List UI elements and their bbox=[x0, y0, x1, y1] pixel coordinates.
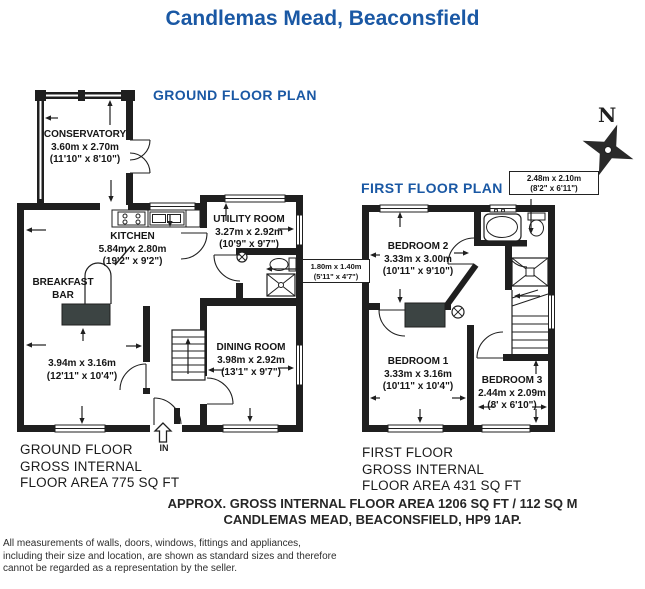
page-title: Candlemas Mead, Beaconsfield bbox=[0, 7, 645, 31]
dining-room-label: DINING ROOM 3.98m x 2.92m (13'1" x 9'7") bbox=[203, 342, 299, 380]
extractor-fan-icon bbox=[237, 252, 247, 262]
bedroom2-label: BEDROOM 2 3.33m x 3.00m (10'11" x 9'10") bbox=[374, 241, 462, 279]
floorplan-page: N Candlemas Mead, Beaconsfield GROUND FL… bbox=[0, 0, 645, 589]
stairs bbox=[172, 330, 205, 380]
compass-rose-icon: N bbox=[583, 103, 634, 175]
ground-floor-area-text: GROUND FLOOR GROSS INTERNAL FLOOR AREA 7… bbox=[20, 442, 179, 492]
compass-north-label: N bbox=[598, 103, 616, 127]
ground-floor-plan-title: GROUND FLOOR PLAN bbox=[153, 87, 317, 103]
airing-cupboard bbox=[512, 258, 548, 286]
disclaimer-text: All measurements of walls, doors, window… bbox=[3, 538, 337, 576]
bedroom1-label: BEDROOM 1 3.33m x 3.16m (10'11" x 10'4") bbox=[374, 356, 462, 394]
first-floor-plan-title: FIRST FLOOR PLAN bbox=[361, 180, 503, 196]
wc-dimension-box: 1.80m x 1.40m (5'11" x 4'7") bbox=[302, 259, 370, 283]
first-floor-area-text: FIRST FLOOR GROSS INTERNAL FLOOR AREA 43… bbox=[362, 445, 521, 495]
conservatory-label: CONSERVATORY 3.60m x 2.70m (11'10" x 8'1… bbox=[33, 129, 137, 167]
bathtub-icon bbox=[484, 209, 521, 241]
kitchen-label: KITCHEN 5.84m x 2.80m (19'2" x 9'2") bbox=[90, 231, 175, 269]
utility-room-label: UTILITY ROOM 3.27m x 2.92m (10'9" x 9'7"… bbox=[203, 214, 295, 252]
built-in-wardrobe bbox=[405, 303, 445, 327]
light-symbol-icon bbox=[452, 306, 464, 318]
shower-icon bbox=[267, 274, 295, 296]
living-room-label: 3.94m x 3.16m (12'11" x 10'4") bbox=[22, 358, 142, 383]
hob-icon bbox=[118, 212, 145, 225]
footer-approx-text: APPROX. GROSS INTERNAL FLOOR AREA 1206 S… bbox=[100, 496, 645, 528]
bathroom-dimension-box: 2.48m x 2.10m (8'2" x 6'11") bbox=[509, 171, 599, 195]
breakfast-bar-label: BREAKFAST BAR bbox=[22, 277, 104, 302]
stairs bbox=[512, 290, 548, 356]
bedroom3-label: BEDROOM 3 2.44m x 2.09m (8' x 6'10") bbox=[466, 375, 558, 413]
sink-icon bbox=[150, 212, 184, 225]
